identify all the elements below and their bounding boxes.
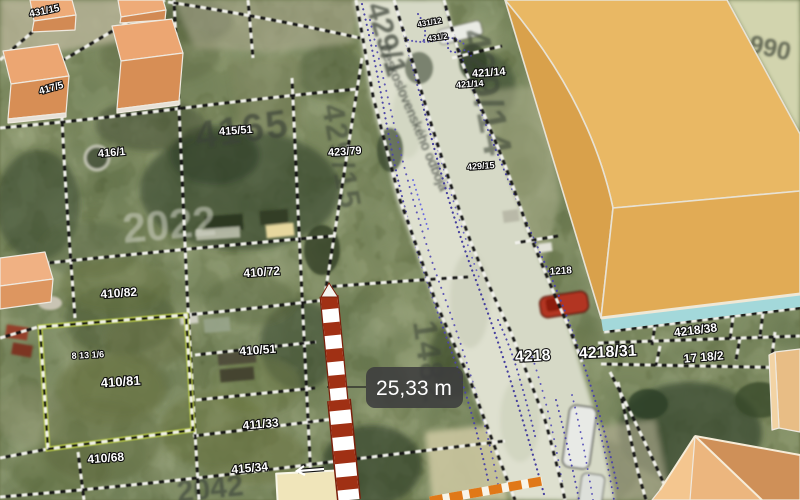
svg-text:4218: 4218 xyxy=(515,347,552,366)
svg-text:421/14: 421/14 xyxy=(456,78,484,90)
svg-text:410/82: 410/82 xyxy=(100,285,138,302)
svg-text:2022: 2022 xyxy=(121,197,218,252)
svg-text:415/51: 415/51 xyxy=(219,124,253,138)
svg-text:25,33 m: 25,33 m xyxy=(376,377,452,400)
svg-text:410/81: 410/81 xyxy=(100,373,141,391)
svg-text:421/14: 421/14 xyxy=(472,66,507,80)
svg-text:416/1: 416/1 xyxy=(98,146,126,160)
svg-text:410/72: 410/72 xyxy=(243,264,281,281)
svg-text:423/79: 423/79 xyxy=(328,145,362,159)
svg-text:429/15: 429/15 xyxy=(467,160,495,172)
svg-text:1218: 1218 xyxy=(549,265,572,278)
svg-text:410/68: 410/68 xyxy=(87,450,125,467)
svg-text:410/51: 410/51 xyxy=(239,342,277,359)
svg-text:8 13 1/6: 8 13 1/6 xyxy=(71,349,104,361)
svg-text:4218/31: 4218/31 xyxy=(578,342,637,362)
